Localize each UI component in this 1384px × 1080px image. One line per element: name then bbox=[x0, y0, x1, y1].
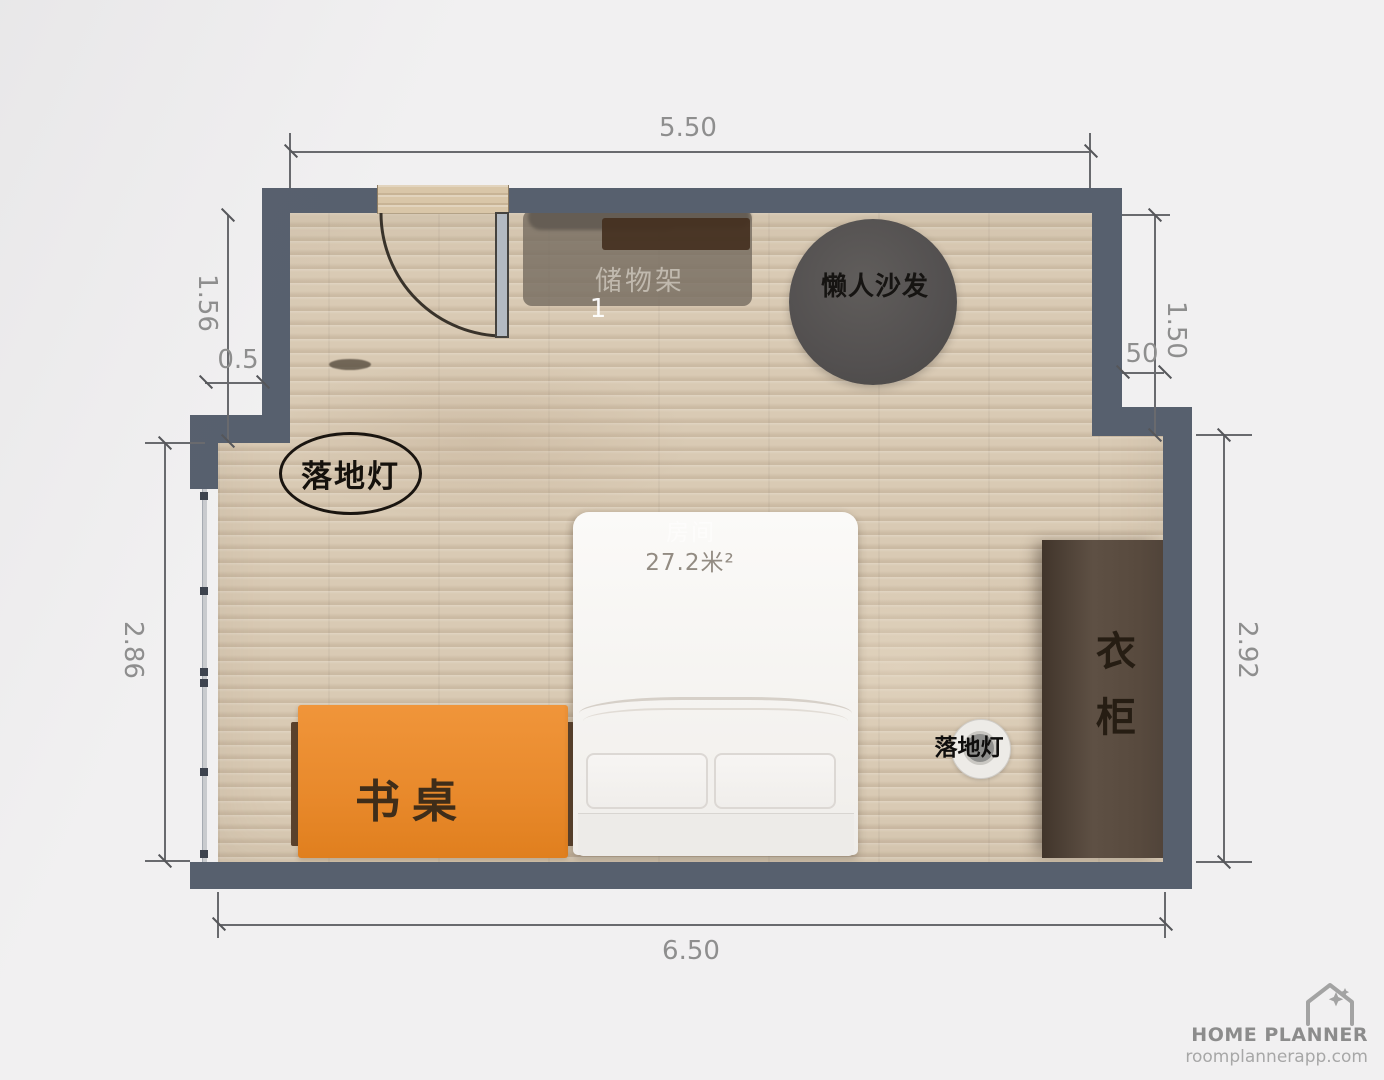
floor-lamp-right-label: 落地灯 bbox=[889, 728, 1049, 762]
dim-left-lower: 2.86 bbox=[118, 620, 148, 680]
dim-line bbox=[1154, 215, 1156, 435]
room-name-label: 房间 bbox=[591, 513, 791, 547]
dim-line bbox=[290, 151, 1090, 153]
bed-pillow-right bbox=[714, 753, 836, 809]
dim-line bbox=[164, 443, 166, 861]
dim-extension bbox=[1122, 214, 1170, 216]
storage-shelf-index: 1 bbox=[588, 294, 608, 324]
dim-extension bbox=[1089, 133, 1091, 188]
storage-shelf-label: 储物架 bbox=[540, 259, 740, 298]
dim-extension bbox=[289, 133, 291, 188]
wall-bottom bbox=[190, 862, 1192, 889]
wardrobe-label: 衣柜 bbox=[1083, 630, 1141, 762]
bed-blanket-fold bbox=[583, 708, 848, 734]
dim-extension bbox=[145, 442, 205, 444]
window-mullion bbox=[200, 679, 208, 687]
exterior-notch-left bbox=[218, 213, 262, 415]
wall-right-step bbox=[1092, 407, 1192, 436]
bean-bag-label: 懒人沙发 bbox=[775, 266, 975, 303]
wall-right-upper bbox=[1092, 188, 1122, 407]
floor-lamp-left[interactable]: 落地灯 bbox=[279, 432, 422, 515]
wall-left-stub bbox=[190, 443, 218, 489]
dim-line bbox=[1122, 372, 1164, 374]
bed-pillow-left bbox=[586, 753, 708, 809]
storage-shelf-top bbox=[602, 218, 750, 250]
window-mullion bbox=[200, 668, 208, 676]
floorplan-canvas: 房间 27.2米² 储物架 1 懒人沙发 落地灯 书桌 衣柜 落地灯 5.50 … bbox=[0, 0, 1384, 1080]
home-planner-logo-icon bbox=[1298, 980, 1362, 1026]
dim-line bbox=[1223, 435, 1225, 862]
wall-left-step bbox=[190, 415, 290, 443]
room-area-label: 27.2米² bbox=[590, 543, 790, 577]
dim-left-upper: 1.56 bbox=[192, 273, 222, 333]
wall-right-lower bbox=[1163, 436, 1192, 889]
dim-top: 5.50 bbox=[618, 113, 758, 143]
floor-lamp-left-label: 落地灯 bbox=[301, 451, 400, 496]
door[interactable] bbox=[495, 212, 509, 338]
window-mullion bbox=[200, 850, 208, 858]
wall-left-upper bbox=[262, 188, 290, 415]
watermark-website: roomplannerapp.com bbox=[1150, 1047, 1368, 1067]
door-swing-arc bbox=[372, 208, 512, 348]
floor-knot bbox=[329, 359, 371, 370]
dim-right-lower: 2.92 bbox=[1232, 620, 1262, 680]
dim-line bbox=[227, 215, 229, 441]
window-mullion bbox=[200, 768, 208, 776]
dim-line bbox=[205, 382, 262, 384]
dim-line bbox=[218, 924, 1165, 926]
dim-extension bbox=[217, 892, 219, 938]
bed-headboard bbox=[578, 813, 854, 856]
dim-right-step: 50 bbox=[1112, 339, 1172, 369]
dim-extension bbox=[1164, 892, 1166, 938]
window-mullion bbox=[200, 492, 208, 500]
wall-top-right bbox=[507, 188, 1122, 213]
dim-left-step: 0.5 bbox=[208, 345, 268, 375]
window-mullion bbox=[200, 587, 208, 595]
desk-label: 书桌 bbox=[306, 765, 506, 830]
watermark-brand: HOME PLANNER bbox=[1150, 1024, 1368, 1046]
dim-bottom: 6.50 bbox=[621, 936, 761, 966]
